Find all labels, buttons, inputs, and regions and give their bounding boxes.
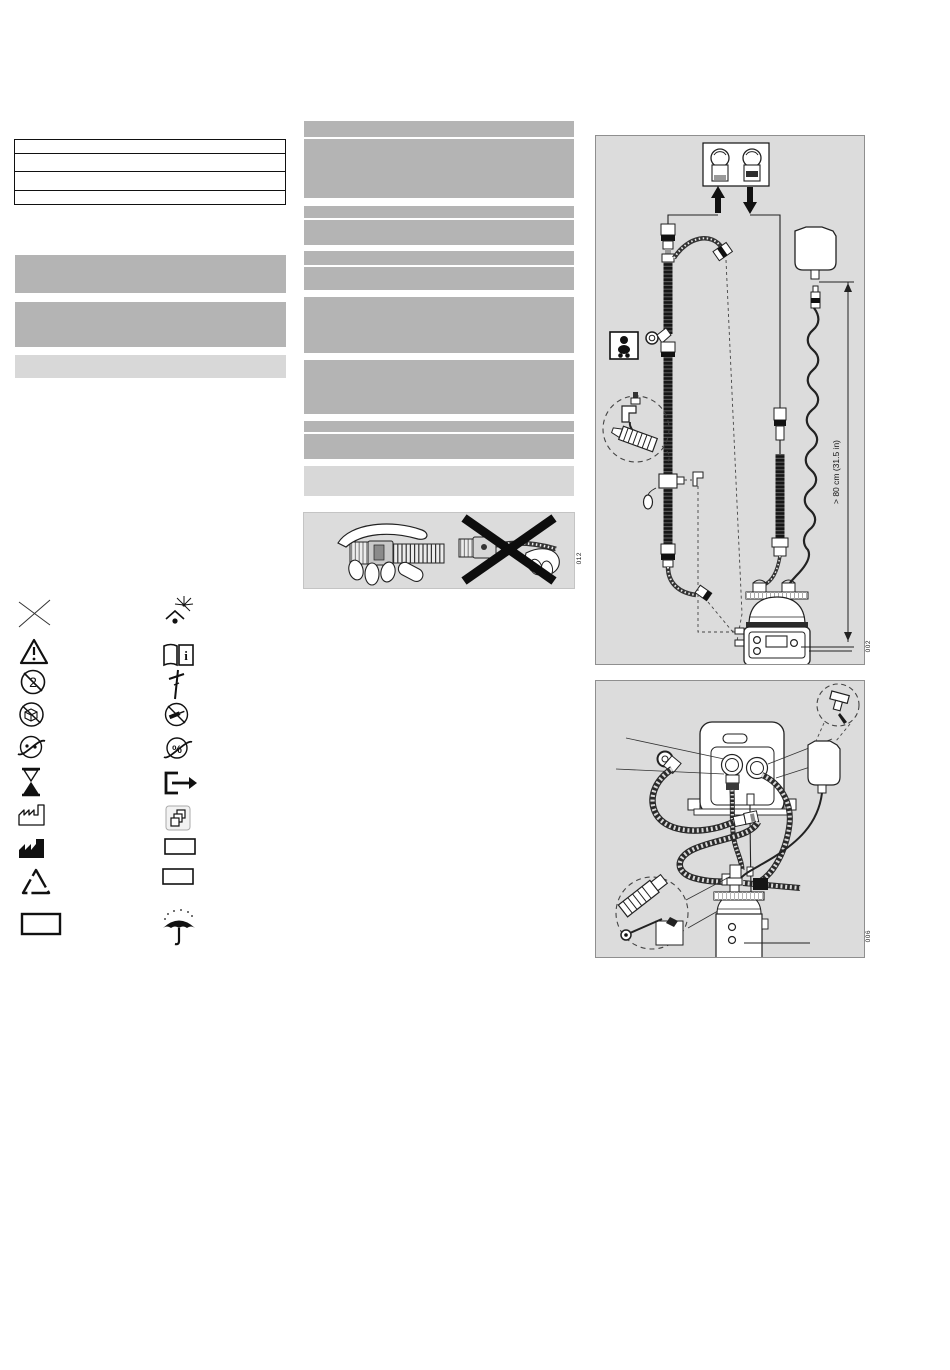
grip-figure-panel [303,512,575,589]
circuit-diagram: > 80 cm (31.5 in) [596,136,864,664]
crossed-lines-icon [17,597,53,631]
crossed-package-icon [17,700,46,729]
stacked-squares-icon [165,805,191,831]
crossed-syringe-icon [162,700,191,729]
blank-box-icon [162,868,194,885]
factory-solid-icon [17,836,49,860]
keep-dry-umbrella-icon [160,908,198,948]
info-table-row [15,172,285,191]
consult-ifu-icon: i [162,641,196,669]
box-exit-arrow-icon [163,770,199,796]
info-table-row [15,191,285,205]
redacted-text-block [15,355,286,378]
incorrect-grip-drawing [459,518,559,581]
redacted-text-block [304,360,574,414]
inspiratory-limb [644,224,733,601]
crossed-connector-icon [16,732,47,761]
recycling-triangle-icon [20,867,52,899]
humidifier-setup-diagram [596,681,864,957]
device-plug [735,628,744,634]
info-table-row [15,154,285,172]
correct-grip-drawing [338,524,444,585]
redacted-text-block [304,421,574,432]
angled-plug [693,472,703,486]
redacted-text-block [304,297,574,353]
expiratory-limb [764,408,788,585]
dimension-label: > 80 cm (31.5 in) [831,440,841,504]
redacted-text-block [15,302,286,347]
machine-ports-box [703,143,769,186]
sensor-cable-routes [684,260,742,641]
redacted-text-block [15,255,286,293]
redacted-text-block [304,267,574,290]
humidifier-figure-panel [595,680,865,958]
ventilator-unit [688,722,796,815]
hourglass-icon [19,766,43,798]
flow-arrows [711,186,757,214]
connector-detail-inset [603,392,669,462]
infant-symbol-box [610,332,638,359]
factory-outline-icon [17,802,49,827]
water-bag-assembly [787,227,836,587]
grip-illustration [304,513,574,588]
redacted-text-block [304,434,574,459]
humidifier-device [744,580,852,664]
stand-symbol-icon [166,669,188,701]
redacted-text-block [304,251,574,265]
single-use-icon: 2 [19,668,47,696]
device-plug [735,640,744,646]
figure-number-012: 012 [577,552,584,564]
info-table [14,139,286,205]
svg-text:i: i [184,648,188,663]
ifu-page: 012 2 [0,0,950,1370]
redacted-text-block [304,121,574,137]
figure-number-006: 006 [866,930,873,942]
redacted-text-block [304,466,574,496]
port-cap [644,495,653,509]
blank-box-icon [20,912,62,936]
blank-box-icon [164,838,196,855]
warning-triangle-icon [19,638,49,666]
keep-from-sunlight-icon [160,595,198,631]
circuit-figure-panel: > 80 cm (31.5 in) [595,135,865,665]
info-table-row [15,140,285,154]
spike-detail-inset [816,684,859,741]
redacted-text-block [304,206,574,218]
crossed-percent-icon: % [161,733,194,764]
redacted-text-block [304,220,574,245]
redacted-text-block [304,139,574,198]
figure-number-002: 002 [866,640,873,652]
supply-coil [787,308,818,587]
